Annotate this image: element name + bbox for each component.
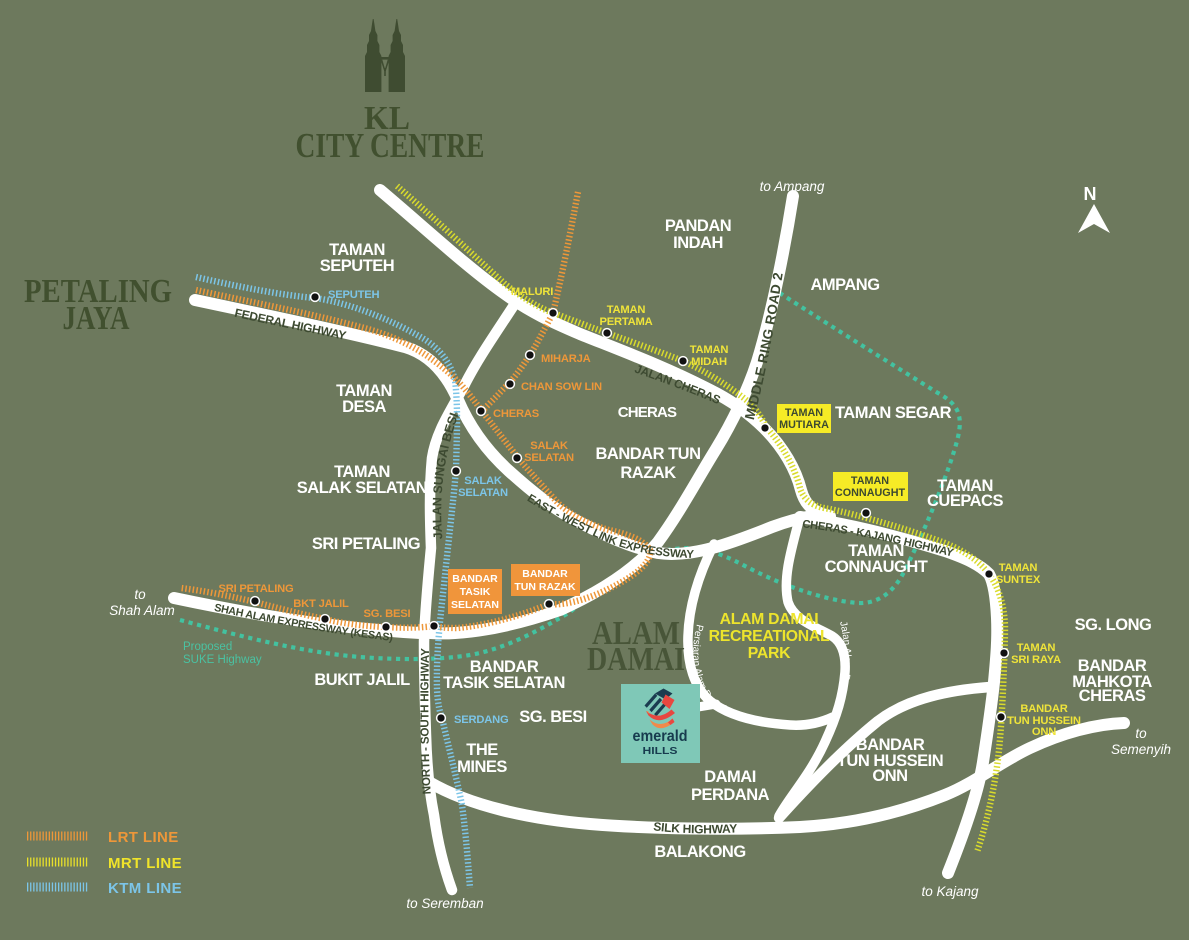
svg-text:DESA: DESA <box>342 398 386 416</box>
svg-text:JAYA: JAYA <box>63 300 130 337</box>
svg-text:TAMAN: TAMAN <box>785 407 823 419</box>
svg-text:SEPUTEH: SEPUTEH <box>328 289 380 301</box>
svg-text:LRT LINE: LRT LINE <box>108 829 179 846</box>
svg-text:TAMAN: TAMAN <box>999 562 1038 574</box>
svg-text:TAMAN: TAMAN <box>690 344 729 356</box>
svg-text:TAMAN: TAMAN <box>607 304 646 316</box>
svg-text:SEPUTEH: SEPUTEH <box>320 257 394 275</box>
svg-text:SELATAN: SELATAN <box>458 487 508 499</box>
svg-text:SG. LONG: SG. LONG <box>1075 616 1152 634</box>
svg-text:MUTIARA: MUTIARA <box>779 419 829 431</box>
svg-text:TAMAN: TAMAN <box>1017 642 1056 654</box>
svg-text:INDAH: INDAH <box>673 234 723 252</box>
svg-text:to Kajang: to Kajang <box>921 884 979 899</box>
svg-text:PANDAN: PANDAN <box>665 217 731 235</box>
svg-text:TAMAN: TAMAN <box>851 475 889 487</box>
svg-text:ONN: ONN <box>1032 726 1056 738</box>
svg-text:SERDANG: SERDANG <box>454 714 509 726</box>
svg-text:MALURI: MALURI <box>511 286 553 298</box>
svg-text:CHERAS: CHERAS <box>493 408 540 420</box>
svg-text:SG. BESI: SG. BESI <box>364 608 411 620</box>
svg-text:HILLS: HILLS <box>643 745 678 757</box>
svg-text:BALAKONG: BALAKONG <box>654 843 745 861</box>
svg-text:BANDAR TUN: BANDAR TUN <box>596 445 701 463</box>
svg-text:SELATAN: SELATAN <box>451 599 499 611</box>
svg-text:CITY CENTRE: CITY CENTRE <box>296 126 485 165</box>
svg-text:SELATAN: SELATAN <box>524 452 574 464</box>
svg-text:MRT LINE: MRT LINE <box>108 855 182 872</box>
svg-text:TUN RAZAK: TUN RAZAK <box>514 581 576 593</box>
svg-text:RECREATIONAL: RECREATIONAL <box>709 628 830 645</box>
svg-text:ALAM DAMAI: ALAM DAMAI <box>720 611 819 628</box>
svg-text:AMPANG: AMPANG <box>810 276 879 294</box>
svg-text:CHERAS: CHERAS <box>1079 687 1146 705</box>
svg-text:SUNTEX: SUNTEX <box>996 574 1041 586</box>
svg-text:CHERAS: CHERAS <box>618 404 677 421</box>
svg-text:BANDAR: BANDAR <box>1020 703 1067 715</box>
svg-text:emerald: emerald <box>633 728 688 745</box>
svg-text:NORTH - SOUTH HIGHWAY: NORTH - SOUTH HIGHWAY <box>418 648 433 795</box>
svg-text:SRI RAYA: SRI RAYA <box>1011 654 1061 666</box>
svg-text:DAMAI: DAMAI <box>704 768 756 786</box>
svg-text:MIHARJA: MIHARJA <box>541 353 591 365</box>
svg-text:KTM LINE: KTM LINE <box>108 880 182 897</box>
svg-text:RAZAK: RAZAK <box>620 464 676 482</box>
svg-text:MIDAH: MIDAH <box>691 356 727 368</box>
svg-text:N: N <box>1084 184 1097 204</box>
svg-text:BANDAR: BANDAR <box>522 568 568 580</box>
svg-text:Proposed: Proposed <box>183 641 232 653</box>
svg-text:PARK: PARK <box>748 645 791 662</box>
svg-text:SALAK: SALAK <box>464 475 502 487</box>
svg-text:PERDANA: PERDANA <box>691 786 770 804</box>
svg-text:SUKE Highway: SUKE Highway <box>183 654 262 666</box>
svg-text:SRI PETALING: SRI PETALING <box>312 535 420 553</box>
svg-text:Semenyih: Semenyih <box>1111 742 1171 757</box>
svg-text:TASIK SELATAN: TASIK SELATAN <box>443 674 565 692</box>
svg-text:BANDAR: BANDAR <box>452 573 498 585</box>
svg-text:SALAK SELATAN: SALAK SELATAN <box>297 479 427 497</box>
svg-text:SALAK: SALAK <box>530 440 568 452</box>
svg-text:THE: THE <box>466 741 498 759</box>
svg-text:SRI PETALING: SRI PETALING <box>218 583 294 595</box>
svg-text:TAMAN SEGAR: TAMAN SEGAR <box>835 404 952 422</box>
svg-text:CONNAUGHT: CONNAUGHT <box>835 487 906 499</box>
svg-text:to: to <box>1135 726 1147 741</box>
svg-text:CUEPACS: CUEPACS <box>927 492 1003 510</box>
svg-text:Shah Alam: Shah Alam <box>109 603 175 618</box>
svg-text:to Seremban: to Seremban <box>406 896 483 911</box>
svg-text:DAMAI: DAMAI <box>587 641 685 678</box>
svg-text:TASIK: TASIK <box>460 586 491 598</box>
svg-text:MINES: MINES <box>457 758 507 776</box>
svg-text:CONNAUGHT: CONNAUGHT <box>825 558 928 576</box>
svg-text:ONN: ONN <box>872 767 907 785</box>
svg-text:SG. BESI: SG. BESI <box>519 708 587 726</box>
svg-text:BUKIT JALIL: BUKIT JALIL <box>314 671 410 689</box>
svg-text:CHAN SOW LIN: CHAN SOW LIN <box>521 381 602 393</box>
svg-text:to Ampang: to Ampang <box>760 179 825 194</box>
svg-text:PERTAMA: PERTAMA <box>599 316 652 328</box>
svg-text:BKT JALIL: BKT JALIL <box>293 598 349 610</box>
svg-text:to: to <box>134 587 146 602</box>
